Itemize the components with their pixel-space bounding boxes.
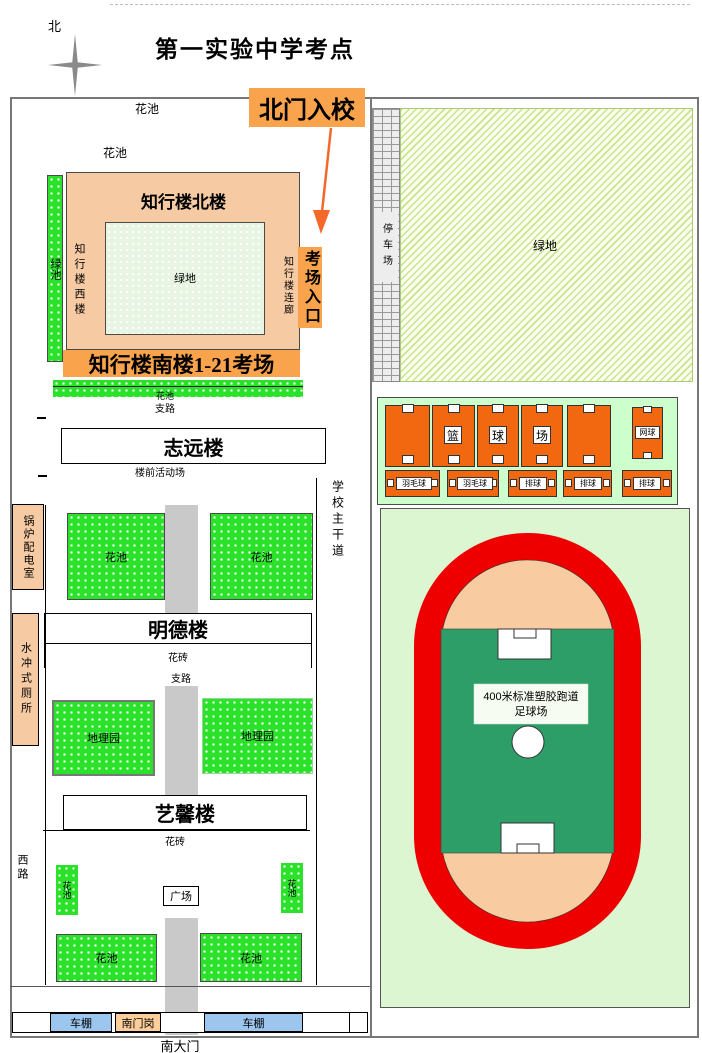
- hoop-icon: [492, 455, 504, 464]
- strip-divider: [349, 1012, 350, 1033]
- top-dashed-line: [110, 4, 690, 5]
- geo-garden-left: 地理园: [52, 700, 155, 776]
- net-post-icon: [387, 479, 394, 487]
- south-gate-label: 南大门: [150, 1038, 210, 1053]
- net-post-icon: [565, 479, 572, 487]
- hoop-icon: [583, 404, 595, 413]
- stadium-label-line1: 400米标准塑胶跑道: [483, 690, 578, 705]
- hoop-icon: [643, 406, 652, 413]
- net-post-icon: [624, 479, 631, 487]
- net-post-icon: [663, 479, 670, 487]
- branch-road-label-2: 支路: [156, 671, 206, 684]
- campus-map: 北 第一实验中学考点 花池 花池 绿池 知行楼北楼 绿地 知行楼西楼 知行楼连廊…: [0, 0, 702, 1053]
- small-court-label-5: 排球: [633, 477, 661, 490]
- compass-north-label: 北: [48, 16, 61, 35]
- central-road-seg-1: [165, 505, 198, 613]
- exam-entrance-label: 考场入口: [298, 247, 322, 328]
- flower-strip-line: [53, 386, 303, 387]
- net-post-icon: [510, 479, 517, 487]
- basketball-char: 球: [492, 427, 504, 444]
- flower-strip-right: 花池: [281, 863, 303, 913]
- zhixing-south-banner: 知行楼南楼1-21考场: [63, 350, 300, 377]
- yixin-base-line: [43, 830, 310, 831]
- flower-strip-left: 花池: [56, 865, 78, 915]
- stadium-label-line2: 足球场: [515, 705, 548, 720]
- hoop-icon: [643, 452, 652, 459]
- zhiyuan-building: 志远楼: [61, 428, 326, 464]
- flower-bed-bottom-left-label: 花池: [96, 950, 118, 966]
- geo-garden-right: 地理园: [202, 698, 313, 774]
- stadium-area: 400米标准塑胶跑道 足球场: [380, 508, 690, 1008]
- parking-label: 停车场: [374, 212, 398, 282]
- small-court-label-2: 羽毛球: [457, 477, 493, 490]
- gate-dash-1: [37, 417, 46, 419]
- tennis-label: 网球: [635, 426, 660, 439]
- plaza-box: 广场: [163, 886, 199, 906]
- east-inner-road-line: [316, 478, 317, 985]
- branch-road-label-1: 支路: [140, 401, 190, 414]
- flower-bed-bottom-left: 花池: [56, 934, 157, 982]
- stadium-label: 400米标准塑胶跑道 足球场: [474, 686, 588, 724]
- flower-bed-bottom-right: 花池: [200, 933, 302, 982]
- small-court-label-3: 排球: [519, 477, 547, 490]
- green-pool-strip: 绿池: [47, 175, 63, 362]
- toilet-building: 水冲式厕所: [12, 613, 39, 746]
- flower-bed-right-label: 花池: [251, 549, 273, 565]
- flower-brick-label-2: 花砖: [150, 834, 200, 847]
- bike-shed-right: 车棚: [204, 1013, 303, 1032]
- zhiyuan-sub-label: 楼前活动场: [110, 465, 210, 478]
- gate-dash-2: [38, 475, 47, 477]
- net-post-icon: [449, 479, 456, 487]
- tennis-label-text: 网球: [640, 427, 656, 438]
- hoop-icon: [448, 455, 460, 464]
- small-court-text: 排球: [525, 478, 541, 489]
- compass-star-icon: [48, 34, 102, 96]
- flower-bed-bottom-right-label: 花池: [240, 950, 262, 966]
- basketball-label-2: 球: [489, 426, 507, 444]
- mingde-label: 明德楼: [45, 613, 311, 644]
- boiler-room: 锅炉配电室: [12, 504, 44, 590]
- flower-bed-left-label: 花池: [105, 549, 127, 565]
- zhixing-inner-lawn-label: 绿地: [155, 270, 215, 286]
- center-circle: [512, 726, 544, 758]
- flower-bed-label-2: 花池: [103, 144, 127, 161]
- basketball-label-3: 场: [533, 426, 551, 444]
- flower-brick-label-1: 花砖: [45, 644, 311, 668]
- zhixing-north-label: 知行楼北楼: [96, 188, 271, 212]
- west-inner-road-line: [45, 505, 46, 985]
- small-court-label-4: 排球: [574, 477, 602, 490]
- green-space-label: 绿地: [515, 237, 575, 253]
- main-road-label: 学校主干道: [330, 474, 346, 566]
- geo-garden-right-label: 地理园: [241, 728, 274, 744]
- small-court-text: 羽毛球: [402, 478, 426, 489]
- basketball-char: 篮: [447, 427, 459, 444]
- net-post-icon: [603, 479, 610, 487]
- green-pool-label: 绿池: [47, 258, 63, 280]
- central-road-seg-2: [165, 686, 198, 795]
- south-area-line: [10, 986, 370, 987]
- basketball-label-1: 篮: [444, 426, 462, 444]
- hoop-icon: [448, 404, 460, 413]
- running-track: [381, 509, 691, 1009]
- flower-bed-left: 花池: [67, 513, 165, 600]
- small-court-text: 羽毛球: [463, 478, 487, 489]
- hoop-icon: [402, 455, 414, 464]
- flower-bed-right: 花池: [210, 513, 313, 600]
- small-court-text: 排球: [639, 478, 655, 489]
- small-court-text: 排球: [580, 478, 596, 489]
- west-road-label: 西路: [15, 848, 29, 888]
- flower-bed-label-top: 花池: [135, 100, 159, 117]
- zhixing-west-label: 知行楼西楼: [71, 222, 87, 338]
- flower-strip-right-label: 花池: [286, 879, 299, 897]
- net-post-icon: [431, 479, 438, 487]
- net-post-icon: [548, 479, 555, 487]
- page-title: 第一实验中学考点: [115, 32, 395, 62]
- south-gate-post: 南门岗: [115, 1013, 161, 1032]
- hoop-icon: [492, 404, 504, 413]
- flower-strip-left-label: 花池: [61, 881, 74, 899]
- hoop-icon: [402, 404, 414, 413]
- hoop-icon: [536, 404, 548, 413]
- entry-arrow-icon: [300, 126, 344, 238]
- yixin-building: 艺馨楼: [63, 795, 307, 830]
- bike-shed-left: 车棚: [50, 1013, 112, 1032]
- geo-garden-left-label: 地理园: [87, 730, 120, 746]
- north-gate-entry-label: 北门入校: [249, 88, 365, 127]
- zhixing-corridor-label: 知行楼连廊: [280, 238, 294, 334]
- hoop-icon: [536, 455, 548, 464]
- mingde-building: 明德楼 花砖: [44, 613, 312, 668]
- basketball-char: 场: [536, 427, 548, 444]
- small-court-label-1: 羽毛球: [396, 477, 432, 490]
- hoop-icon: [583, 455, 595, 464]
